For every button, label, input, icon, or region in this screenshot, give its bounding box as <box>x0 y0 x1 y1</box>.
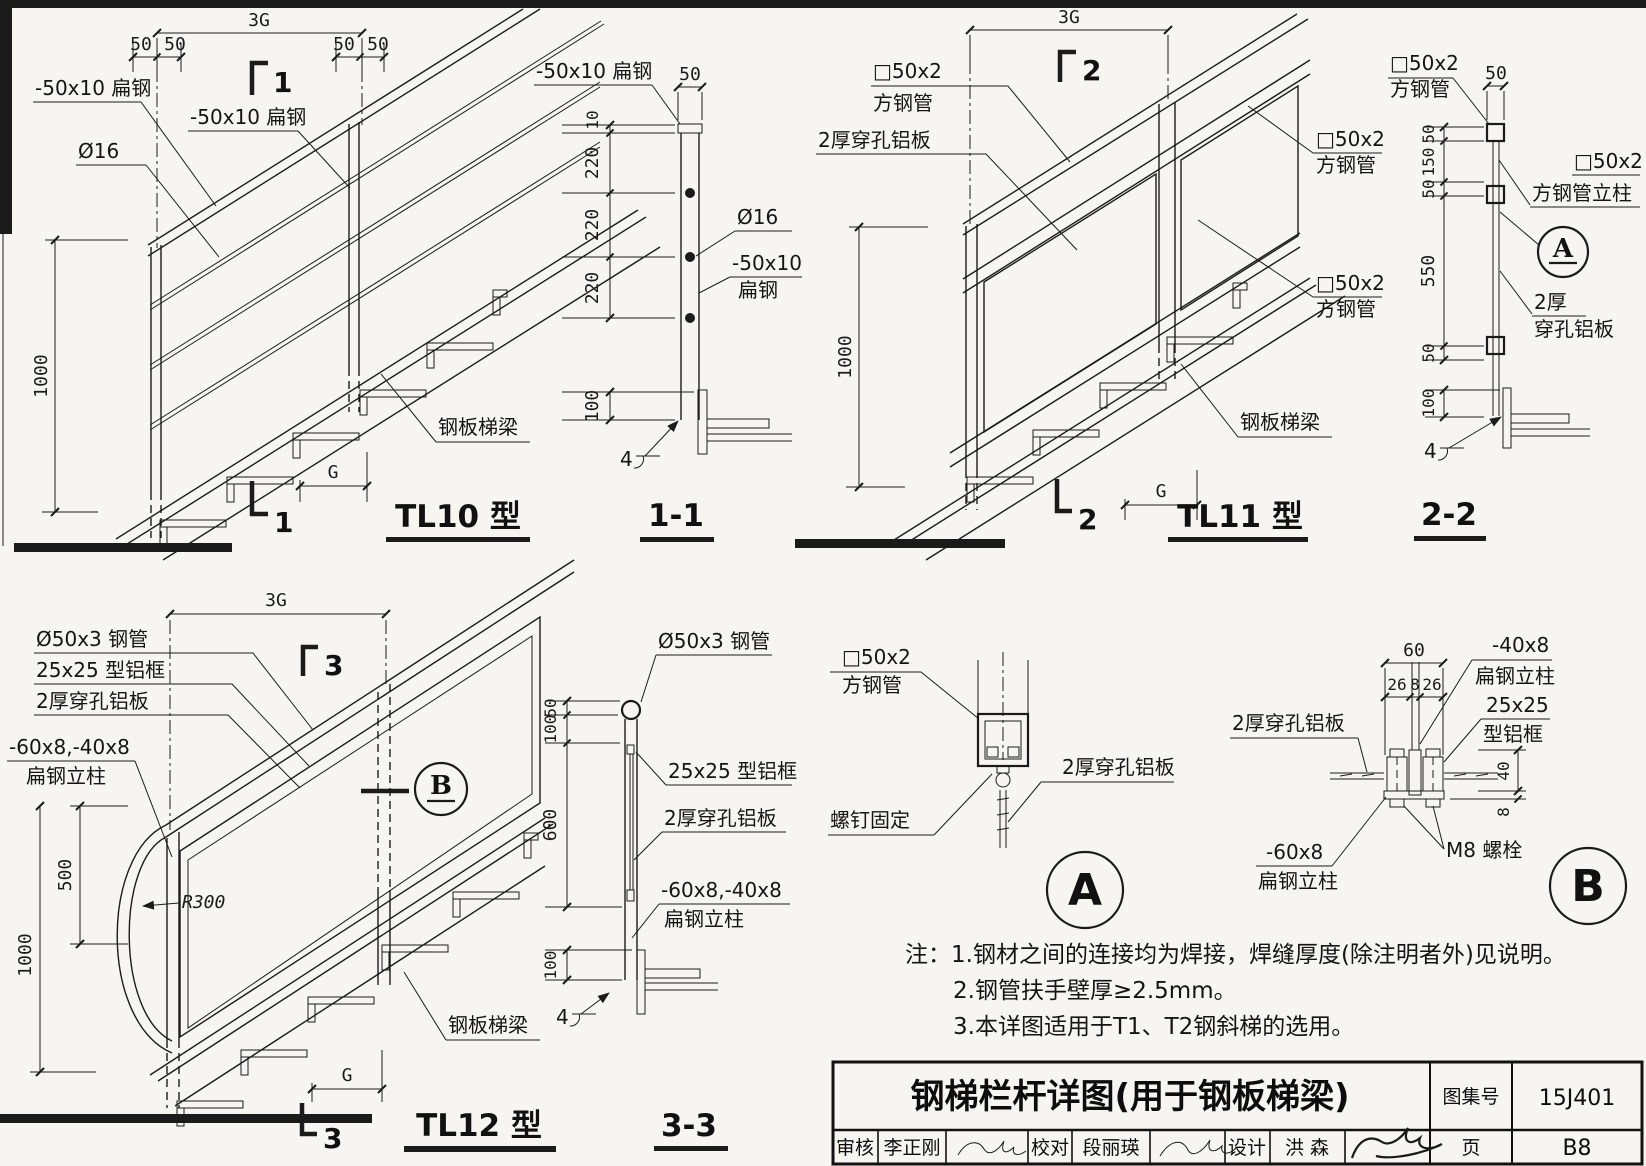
tl10-dim-50-3: 50 <box>333 34 355 55</box>
s22-dim-0: 50 <box>1419 124 1438 143</box>
tl10-section-cut-1: 1 1 <box>252 63 293 539</box>
note-line-3: 3.本详图适用于T1、T2钢斜梯的选用。 <box>953 1014 1354 1040</box>
atlas-number-label: 图集号 <box>1442 1086 1499 1108</box>
detail-a-annotations: □50x2 方钢管 螺钉固定 2厚穿孔铝板 <box>828 645 1175 835</box>
tl12-label-panel: 2厚穿孔铝板 <box>36 689 149 713</box>
atlas-number-value: 15J401 <box>1539 1086 1615 1111</box>
tl10-stringer <box>116 210 660 560</box>
detail-b-dim-8w: 8 <box>1410 675 1420 694</box>
detail-b-label-post40b: 扁钢立柱 <box>1475 664 1555 688</box>
tl12-dim-3g: 3G <box>170 590 386 830</box>
tl11-ground <box>795 539 1005 548</box>
left-edge-bar <box>0 0 12 234</box>
detail-b-marker-letter: B <box>1571 861 1605 912</box>
tl12-cut-top-label: 3 <box>324 649 343 682</box>
s22-label-tube-top2: 方钢管 <box>1390 77 1450 101</box>
tl12-title-underline <box>404 1146 556 1152</box>
tl10-dim-50-1: 50 <box>130 34 152 55</box>
s11-post <box>678 124 702 420</box>
tl10-elevation: 3G 50 50 50 50 1000 G 1 <box>14 9 660 560</box>
design-label: 设计 <box>1228 1137 1266 1159</box>
s22-dim-50-top: 50 <box>1485 63 1507 120</box>
s33-post <box>622 701 640 980</box>
page-label: 页 <box>1461 1137 1480 1159</box>
detail-b-label-post60a: -60x8 <box>1266 840 1323 864</box>
detail-b-dim-26a: 26 <box>1387 675 1406 694</box>
tl10-dim-50-4: 50 <box>367 34 389 55</box>
s22-dim-50-top-label: 50 <box>1485 63 1507 84</box>
tl10-dim-50-right: 50 50 <box>333 34 389 72</box>
tl12-perforated-panel <box>180 617 540 1037</box>
detail-a-tube <box>978 652 1028 766</box>
s33-stringer-base <box>637 950 718 1014</box>
detail-b-label-bolt: M8 螺栓 <box>1446 838 1522 862</box>
s11-label-flat2: 扁钢 <box>738 278 778 302</box>
tl11-treads <box>967 283 1247 502</box>
s22-label-panel1: 2厚 <box>1534 290 1567 314</box>
tl10-title: TL10 型 <box>395 499 521 535</box>
s22-weld-size: 4 <box>1424 439 1437 463</box>
tl10-dim-50-2: 50 <box>164 34 186 55</box>
s22-dim-3: 550 <box>1418 255 1439 288</box>
note-line-1: 注：1.钢材之间的连接均为焊接，焊缝厚度(除注明者外)见说明。 <box>905 942 1566 968</box>
tl11-label-tube-r2a: □50x2 <box>1316 271 1385 295</box>
s22-detail-marker-a: A <box>1552 234 1574 264</box>
s11-weld-size: 4 <box>620 447 633 471</box>
tl12-dim-g: G <box>312 1050 382 1102</box>
tl10-dim-g-label: G <box>328 462 339 483</box>
s11-label-flat-top: -50x10 扁钢 <box>536 59 652 83</box>
detail-a-marker-letter: A <box>1068 865 1102 916</box>
review-label: 审核 <box>836 1137 874 1159</box>
s33-label-frame: 25x25 型铝框 <box>668 759 797 783</box>
s11-title-underline <box>640 537 714 542</box>
tl11-label-panel: 2厚穿孔铝板 <box>818 128 931 152</box>
s22-post <box>1487 124 1504 416</box>
section-2-2: 50 150 50 550 50 100 50 □50x2 方钢管 □50x2 … <box>1388 51 1643 541</box>
detail-a-label-tube1: □50x2 <box>842 645 911 669</box>
detail-b-label-panel: 2厚穿孔铝板 <box>1232 711 1345 735</box>
tl12-label-post1: -60x8,-40x8 <box>9 735 130 759</box>
tl12-annotations: Ø50x3 钢管 25x25 型铝框 2厚穿孔铝板 -60x8,-40x8 扁钢… <box>7 627 540 1040</box>
s33-weld-size: 4 <box>556 1005 569 1029</box>
tl10-ground <box>14 543 232 552</box>
detail-b-label-frame2: 型铝框 <box>1483 722 1543 746</box>
s33-label-posta: -60x8,-40x8 <box>661 878 782 902</box>
tl12-label-beam: 钢板梯梁 <box>448 1013 528 1037</box>
s22-dim-5: 100 <box>1419 389 1438 418</box>
s33-dim-3: 100 <box>541 951 560 980</box>
tl12-label-pipe: Ø50x3 钢管 <box>36 627 148 651</box>
proof-name: 段丽瑛 <box>1082 1137 1139 1159</box>
tl11-cut-top-label: 2 <box>1082 54 1101 87</box>
tl10-label-beam: 钢板梯梁 <box>438 415 518 439</box>
general-notes: 注：1.钢材之间的连接均为焊接，焊缝厚度(除注明者外)见说明。 2.钢管扶手壁厚… <box>905 942 1566 1040</box>
top-edge-bar <box>0 0 1646 8</box>
proof-label: 校对 <box>1031 1137 1069 1159</box>
note-line-2: 2.钢管扶手壁厚≥2.5mm。 <box>953 978 1237 1004</box>
tl11-label-tube-tl1: □50x2 <box>873 59 942 83</box>
s11-dim-220a: 220 <box>582 147 603 180</box>
tl11-perforated-panel-2 <box>1181 86 1298 310</box>
page-number: B8 <box>1562 1136 1591 1161</box>
detail-b-label-frame1: 25x25 <box>1486 693 1549 717</box>
title-block: 钢梯栏杆详图(用于钢板梯梁) 图集号 15J401 审核 李正刚 校对 段丽瑛 … <box>833 1062 1642 1164</box>
tl11-elevation: 3G 1000 G 2 2 □50x2 方钢管 2厚穿孔铝板 □50x2 <box>795 7 1385 560</box>
s33-label-pipe: Ø50x3 钢管 <box>658 629 770 653</box>
tl11-label-tube-tl2: 方钢管 <box>873 91 933 115</box>
tl10-dim-1000: 1000 <box>31 240 128 512</box>
s33-label-panel: 2厚穿孔铝板 <box>664 806 777 830</box>
tl11-handrail <box>963 14 1310 293</box>
detail-b-dim-8h: 8 <box>1494 807 1513 817</box>
tl12-handrail-return-r300-inner <box>129 837 172 1041</box>
tl10-cut-top-label: 1 <box>273 66 292 99</box>
tl12-dim-1000-label: 1000 <box>15 933 36 976</box>
tl11-label-tube-r1a: □50x2 <box>1316 127 1385 151</box>
tl11-dim-3g: 3G <box>970 7 1168 225</box>
s11-dim-50-label: 50 <box>679 64 701 85</box>
review-name: 李正刚 <box>883 1137 940 1159</box>
tl10-dim-3g-label: 3G <box>248 10 270 31</box>
s11-dim-stack: 10 220 220 220 100 <box>562 110 694 422</box>
detail-b-label-post60b: 扁钢立柱 <box>1258 869 1338 893</box>
s22-label-panel2: 穿孔铝板 <box>1534 317 1614 341</box>
tl12-label-post2: 扁钢立柱 <box>26 764 106 788</box>
detail-a-label-tube2: 方钢管 <box>842 673 902 697</box>
tl10-title-underline <box>386 537 530 542</box>
s22-dim-stack: 50 150 50 550 50 100 <box>1418 124 1500 417</box>
s22-title-underline <box>1414 536 1486 541</box>
s33-title-underline <box>654 1146 728 1151</box>
s22-dim-4: 50 <box>1419 343 1438 362</box>
s33-title: 3-3 <box>661 1108 717 1144</box>
tl10-annotations: -50x10 扁钢 -50x10 扁钢 Ø16 钢板梯梁 <box>33 76 530 442</box>
tl10-label-flat-top: -50x10 扁钢 <box>35 76 151 100</box>
detail-b-dim-26b: 26 <box>1422 675 1441 694</box>
tl11-label-tube-r2b: 方钢管 <box>1316 297 1376 321</box>
tl12-r300: R300 <box>143 892 225 913</box>
s11-title: 1-1 <box>648 498 704 534</box>
s33-label-postb: 扁钢立柱 <box>664 907 744 931</box>
tl12-title: TL12 型 <box>416 1108 542 1144</box>
tl12-dim-3g-label: 3G <box>265 590 287 611</box>
tl11-title-underline <box>1168 537 1308 542</box>
s22-title: 2-2 <box>1421 497 1477 533</box>
tl12-dim-r300-label: R300 <box>182 892 225 913</box>
s22-label-tube-top1: □50x2 <box>1390 51 1459 75</box>
s11-dim-220c: 220 <box>582 272 603 305</box>
section-3-3: 50 100 600 100 Ø50x3 钢管 25x25 型铝框 2厚穿孔铝板… <box>540 629 797 1151</box>
tl12-marker-b-letter: B <box>430 771 452 801</box>
tl10-cut-bottom-label: 1 <box>274 506 293 539</box>
tl11-label-tube-r1b: 方钢管 <box>1316 153 1376 177</box>
design-name: 洪 森 <box>1285 1137 1329 1159</box>
detail-a-label-screw: 螺钉固定 <box>830 808 910 832</box>
detail-b-dim-40: 40 <box>1494 761 1513 780</box>
s11-dim-50: 50 <box>678 64 702 120</box>
tl12-dim-g-label: G <box>342 1065 353 1086</box>
tl10-label-flat-mid: -50x10 扁钢 <box>190 105 306 129</box>
tl11-dim-1000: 1000 <box>835 227 928 487</box>
s22-stringer-base <box>1503 388 1590 448</box>
s33-dim-stack: 50 100 600 100 <box>540 698 632 980</box>
s22-dim-2: 50 <box>1419 179 1438 198</box>
tl12-elevation: 3G 500 1000 G R300 3 3 <box>0 560 574 1155</box>
tl12-treads <box>177 833 538 1126</box>
s11-dim-220b: 220 <box>582 209 603 242</box>
tl12-stringer <box>150 818 553 1106</box>
s22-label-post2: 方钢管立柱 <box>1532 181 1632 205</box>
tl12-ground <box>0 1114 372 1123</box>
s11-dim-10: 10 <box>583 110 602 129</box>
detail-b-dim-60: 60 <box>1403 640 1425 661</box>
tl11-posts <box>966 102 1175 510</box>
s33-dim-1: 100 <box>541 715 560 744</box>
s11-label-rod: Ø16 <box>737 205 778 229</box>
s33-dim-2: 600 <box>540 809 561 842</box>
detail-b-label-post40a: -40x8 <box>1492 633 1549 657</box>
tl12-cut-bottom-label: 3 <box>323 1122 342 1155</box>
tl12-dim-1000: 1000 <box>15 806 96 1072</box>
s22-dim-1: 150 <box>1419 148 1438 177</box>
tl12-detail-marker-b: B <box>361 763 467 815</box>
stair-railing-detail-drawing: 3G 50 50 50 50 1000 G 1 <box>0 0 1646 1166</box>
s22-label-post1: □50x2 <box>1574 149 1643 173</box>
tl10-dim-1000-label: 1000 <box>31 354 52 397</box>
tl10-dim-50-left: 50 50 <box>130 34 186 72</box>
detail-b: 60 26 8 26 40 8 2厚穿孔铝板 -40x8 扁钢立柱 25x25 … <box>1230 633 1626 924</box>
tl12-label-frame: 25x25 型铝框 <box>36 658 165 682</box>
tl11-cut-bottom-label: 2 <box>1078 503 1097 536</box>
detail-a-label-panel: 2厚穿孔铝板 <box>1062 755 1175 779</box>
sheet-title: 钢梯栏杆详图(用于钢板梯梁) <box>910 1077 1349 1117</box>
s11-annotations: -50x10 扁钢 Ø16 -50x10 扁钢 4 <box>534 59 802 471</box>
tl11-title: TL11 型 <box>1177 499 1303 535</box>
tl12-dim-500-label: 500 <box>55 859 76 892</box>
drawing-sheet: 3G 50 50 50 50 1000 G 1 <box>0 0 1646 1166</box>
s11-stringer-base <box>698 390 792 454</box>
tl11-dim-g-label: G <box>1156 481 1167 502</box>
tl11-perforated-panel-1 <box>984 174 1156 432</box>
s11-label-flat1: -50x10 <box>732 251 802 275</box>
detail-a-screw-and-panel <box>996 766 1010 848</box>
tl11-dim-3g-label: 3G <box>1058 7 1080 28</box>
detail-a: □50x2 方钢管 螺钉固定 2厚穿孔铝板 A <box>828 645 1175 928</box>
tl12-panel-frame <box>188 636 532 1028</box>
tl11-label-beam: 钢板梯梁 <box>1240 410 1320 434</box>
tl11-dim-1000-label: 1000 <box>835 335 856 378</box>
tl12-handrail <box>117 560 574 1053</box>
s11-dim-100: 100 <box>582 390 603 423</box>
tl10-dim-g: G <box>300 452 367 502</box>
tl10-label-rod: Ø16 <box>78 139 119 163</box>
